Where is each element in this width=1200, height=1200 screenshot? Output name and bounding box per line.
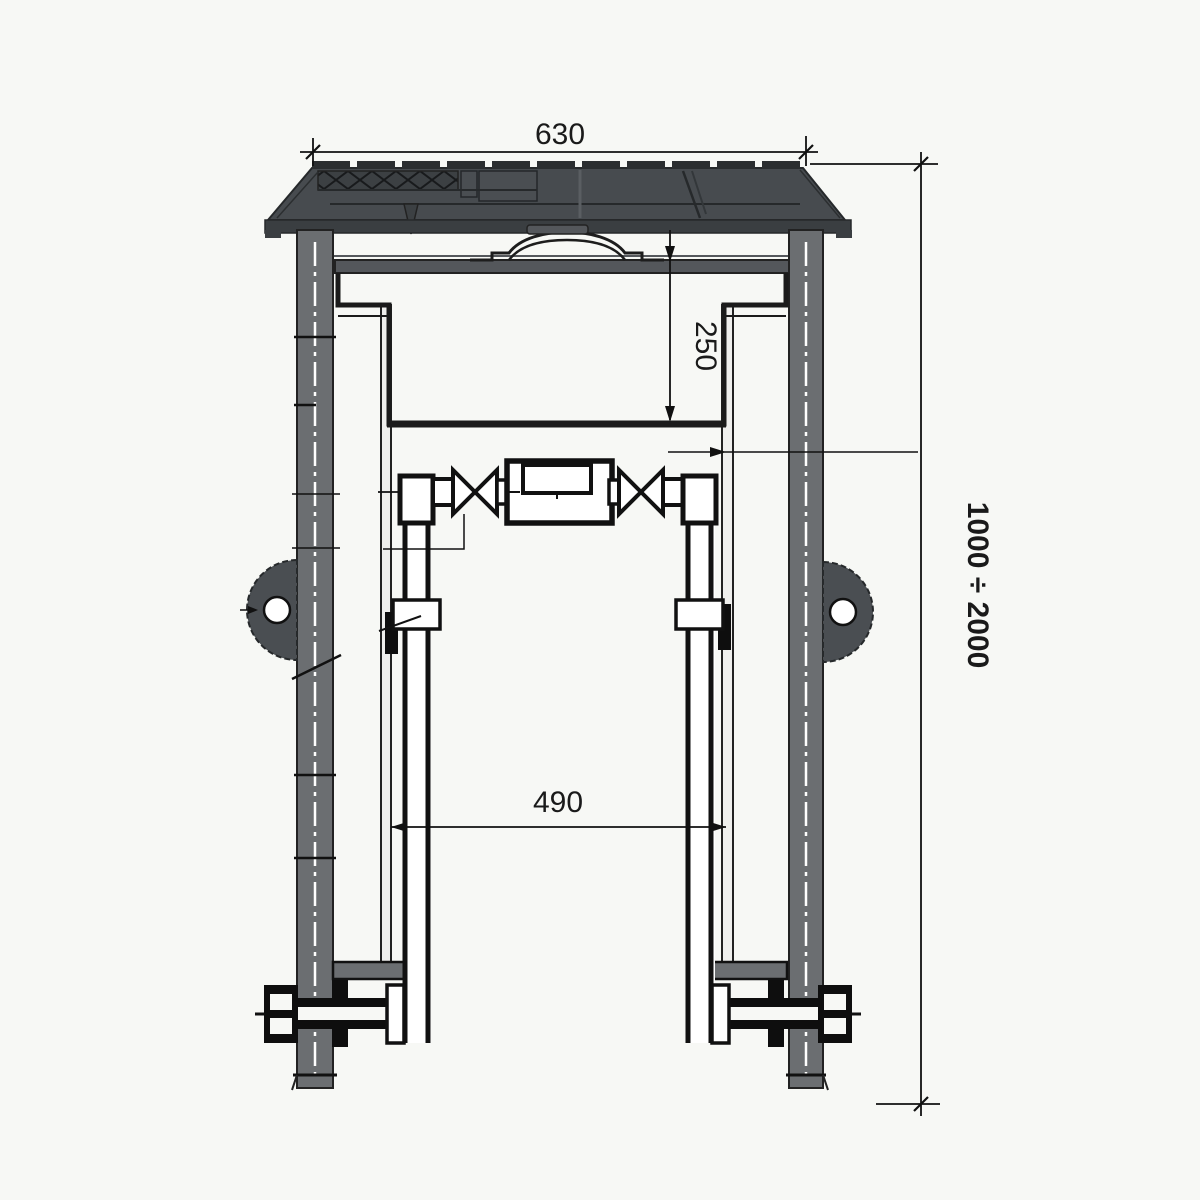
frame-end-step-left <box>265 230 281 238</box>
bolt-through <box>387 985 404 1043</box>
bolt-through <box>712 985 729 1043</box>
flange-plate-window <box>824 994 846 1010</box>
left-nipple <box>433 479 453 505</box>
frame-end-step-right <box>836 230 852 238</box>
liner-bottom-shelf-left <box>333 962 405 979</box>
coupling-body <box>393 600 440 629</box>
bolt-head <box>768 980 784 999</box>
dimension-depth-range-label: 1000 ÷ 2000 <box>961 502 994 669</box>
liner-bottom-shelf-right <box>711 962 787 979</box>
flange-plate-window <box>824 1018 846 1034</box>
lug-hole <box>830 599 856 625</box>
bolt-head <box>768 1028 784 1047</box>
bolt-head <box>332 1028 348 1047</box>
flange-plate-window <box>270 994 292 1010</box>
lug-hole <box>264 597 290 623</box>
cover-hatch-panel <box>318 171 458 190</box>
plug-top-plate <box>335 260 789 273</box>
bolt-head <box>332 980 348 999</box>
dimension-riser-spacing-label: 490 <box>533 786 583 819</box>
cover-small-panel <box>461 171 477 197</box>
right-shaft-pipe <box>786 230 828 1090</box>
left-elbow <box>400 476 433 523</box>
water-meter-register <box>523 465 591 493</box>
drawing-canvas: 630 250 490 1000 ÷ 2000 <box>0 0 1200 1200</box>
outer-flange-plate <box>818 985 852 1043</box>
dimension-plug-depth-label: 250 <box>689 321 722 371</box>
cover-panel <box>479 171 537 201</box>
flange-plate-window <box>270 1018 292 1034</box>
water-meter-pit-section-drawing: 630 250 490 1000 ÷ 2000 <box>0 0 1200 1200</box>
right-nipple <box>663 479 683 505</box>
dome-tab <box>527 225 588 234</box>
coupling-body <box>676 600 723 629</box>
outer-flange-plate <box>264 985 298 1043</box>
right-elbow <box>683 476 716 523</box>
dimension-cover-width-label: 630 <box>535 118 585 151</box>
